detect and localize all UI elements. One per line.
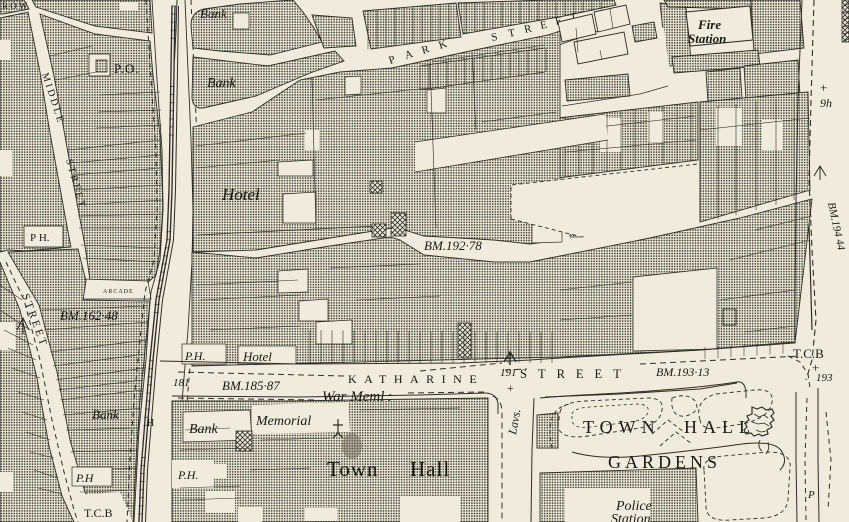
svg-text:War Meml :: War Meml : bbox=[322, 389, 392, 405]
svg-text:191: 191 bbox=[500, 367, 517, 379]
svg-text:Bank: Bank bbox=[200, 6, 227, 21]
svg-text:9h: 9h bbox=[820, 96, 832, 110]
svg-text:BM.185·87: BM.185·87 bbox=[222, 378, 280, 393]
svg-text:Hall: Hall bbox=[410, 457, 450, 481]
svg-text:+: + bbox=[820, 80, 827, 95]
svg-text:TOWN: TOWN bbox=[583, 417, 661, 437]
svg-text:P.H.: P.H. bbox=[184, 349, 205, 363]
svg-text:Hotel: Hotel bbox=[221, 185, 260, 204]
svg-text:P: P bbox=[807, 489, 815, 501]
svg-text:T.C.B: T.C.B bbox=[793, 346, 824, 361]
svg-text:H: H bbox=[147, 418, 154, 429]
svg-text:BM.192·78: BM.192·78 bbox=[424, 238, 482, 253]
svg-text:+: + bbox=[507, 381, 514, 395]
svg-text:Station: Station bbox=[688, 31, 726, 46]
svg-text:Station: Station bbox=[611, 512, 651, 522]
svg-text:R O W: R O W bbox=[2, 1, 28, 11]
svg-text:KATHARINE: KATHARINE bbox=[348, 372, 484, 386]
svg-text:+: + bbox=[812, 360, 819, 375]
svg-text:P.H.: P.H. bbox=[177, 468, 198, 482]
svg-text:Memorial: Memorial bbox=[255, 414, 311, 429]
svg-text:Hotel: Hotel bbox=[242, 349, 272, 364]
svg-text:181: 181 bbox=[173, 377, 190, 389]
svg-text:Fire: Fire bbox=[697, 17, 721, 32]
svg-text:BM.193·13: BM.193·13 bbox=[656, 365, 709, 379]
svg-text:HALL: HALL bbox=[684, 417, 756, 437]
svg-text:ARCADE: ARCADE bbox=[103, 289, 134, 295]
svg-text:Town: Town bbox=[327, 457, 379, 481]
svg-text:T.C.B: T.C.B bbox=[84, 506, 112, 520]
svg-text:Bank: Bank bbox=[92, 407, 119, 422]
svg-text:P H.: P H. bbox=[30, 232, 50, 244]
svg-text:STREET: STREET bbox=[520, 367, 632, 381]
svg-text:P.H: P.H bbox=[75, 471, 95, 485]
svg-text:BM.162·48: BM.162·48 bbox=[60, 308, 118, 323]
svg-text:Bank: Bank bbox=[207, 76, 237, 91]
svg-text:P.O.: P.O. bbox=[114, 61, 140, 76]
